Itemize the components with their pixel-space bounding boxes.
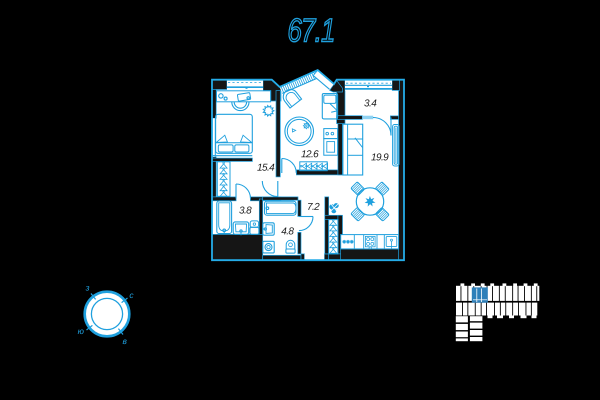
svg-text:3.8: 3.8 — [239, 205, 252, 216]
svg-text:3.4: 3.4 — [364, 98, 377, 109]
svg-text:67.1: 67.1 — [288, 12, 335, 49]
svg-text:4.8: 4.8 — [281, 226, 294, 237]
svg-text:12.6: 12.6 — [301, 149, 319, 160]
svg-text:з: з — [85, 283, 90, 293]
svg-text:7.2: 7.2 — [307, 202, 320, 213]
svg-text:15.4: 15.4 — [257, 163, 275, 174]
svg-text:19.9: 19.9 — [371, 152, 389, 163]
svg-text:ю: ю — [78, 326, 85, 336]
svg-text:в: в — [123, 336, 128, 346]
